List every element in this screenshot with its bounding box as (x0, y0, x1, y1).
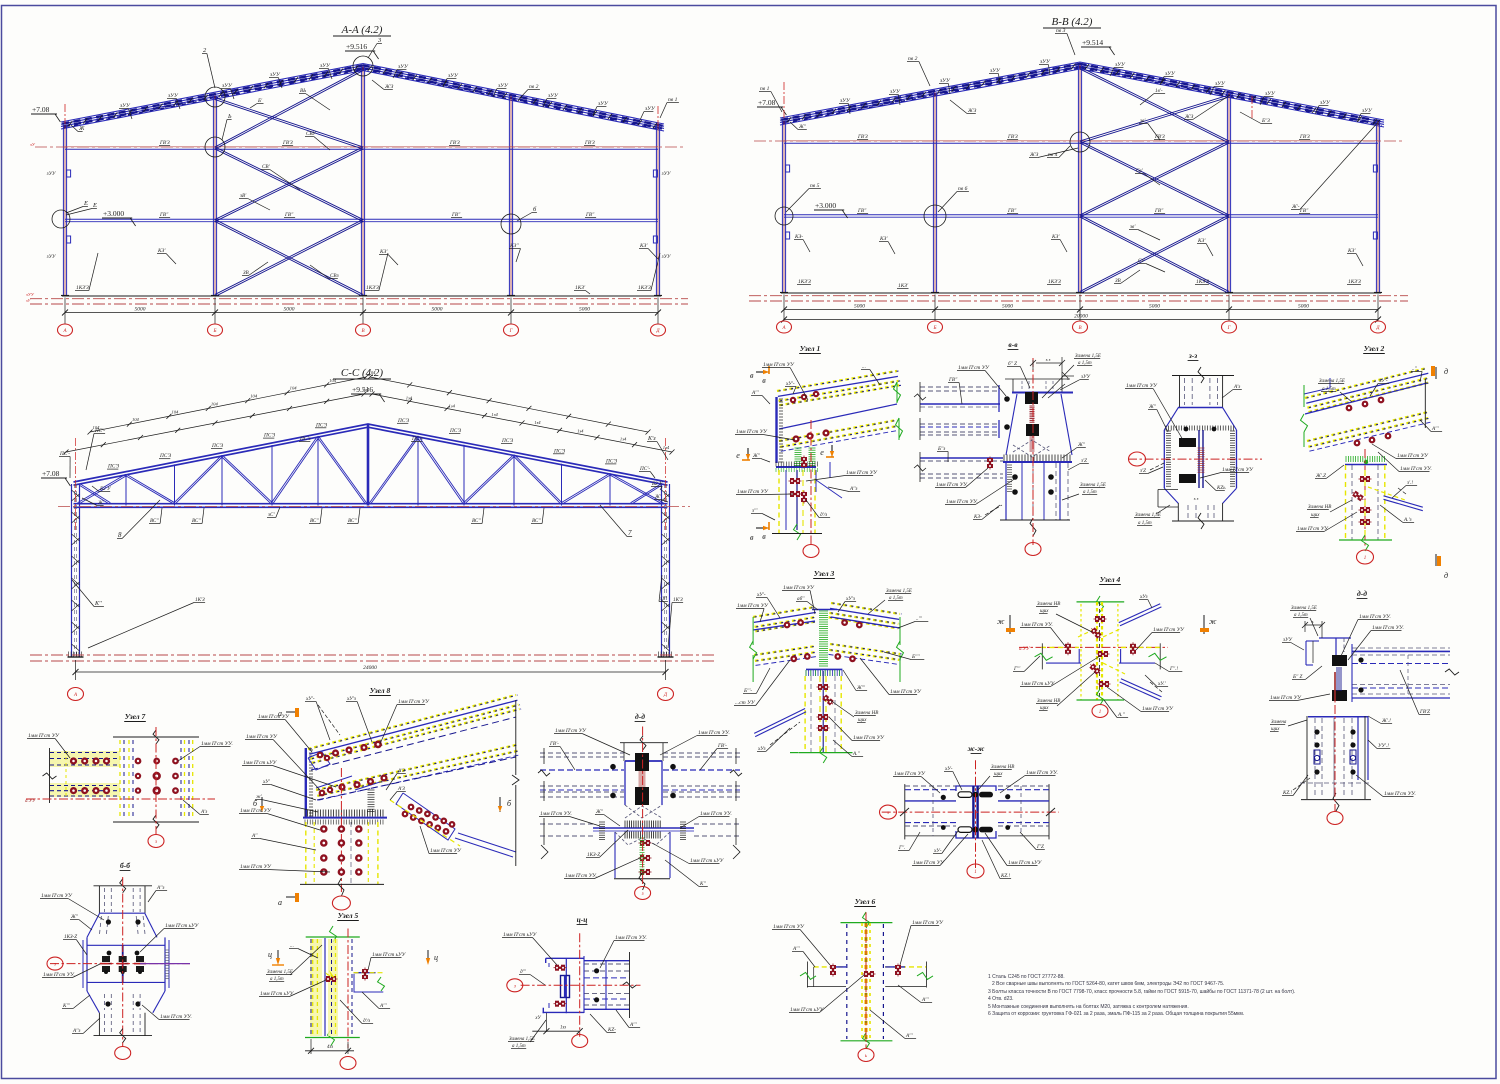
svg-text:ПС'З: ПС'З (449, 428, 461, 434)
svg-text:СВз: СВз (330, 273, 339, 279)
svg-text:+3.000: +3.000 (103, 209, 124, 218)
svg-text:А''з: А''з (849, 486, 857, 492)
svg-text:5000: 5000 (854, 304, 865, 310)
svg-text:е: е (736, 451, 740, 460)
svg-text:1мм П'ст УУ: 1мм П'ст УУ (28, 733, 60, 739)
svg-text:КЗ-: КЗ- (973, 514, 982, 520)
svg-text:ВС'': ВС'' (192, 518, 201, 524)
svg-text:хУ.': хУ.' (1157, 681, 1167, 687)
svg-text:ГВ'З: ГВ'З (1154, 134, 1165, 140)
svg-text:Г''': Г''' (1013, 666, 1021, 672)
svg-text:ПС'з: ПС'з (299, 436, 311, 442)
svg-text:д'/з: д'/з (820, 511, 827, 518)
svg-text:+3.000: +3.000 (815, 201, 836, 210)
svg-text:з: з (154, 840, 157, 845)
svg-text:1мм П'ст УУ: 1мм П'ст УУ (246, 734, 278, 740)
svg-text:зУУ: зУУ (1114, 62, 1126, 68)
svg-text:КZь: КZь (1216, 485, 1226, 491)
svg-text:ГВ'': ГВ'' (1154, 208, 1164, 214)
svg-text:1мм П'ст УУ: 1мм П'ст УУ (737, 489, 769, 495)
svg-text:А''': А''' (921, 997, 929, 1003)
svg-text:1мм П'ст УУ: 1мм П'ст УУ (258, 714, 290, 720)
svg-text:1мм П'ст ьУУ: 1мм П'ст ьУУ (372, 952, 407, 958)
svg-text:ж': ж' (256, 794, 263, 800)
svg-text:зв': зв' (1129, 224, 1136, 230)
svg-text:ГВ'Z: ГВ'Z (1419, 709, 1430, 715)
svg-text:д: д (1444, 571, 1448, 580)
svg-text:зУУ: зУУ (597, 101, 609, 107)
svg-text:Ж'': Ж'' (70, 914, 79, 920)
svg-text:ГВ'': ГВ'' (948, 377, 958, 383)
svg-text:1мм П'ст УУ.: 1мм П'ст УУ. (1026, 770, 1058, 776)
svg-text:1мм П'ст ьУУ: 1мм П'ст ьУУ (260, 991, 295, 997)
svg-text:1мм П'ст УУ: 1мм П'ст УУ (1153, 627, 1185, 633)
svg-text:Г''.!: Г''.! (1169, 666, 1178, 672)
svg-text:1в'-: 1в'- (1155, 88, 1163, 94)
svg-text:Б2 У: Б2 У (99, 486, 112, 492)
svg-text:зУУ: зУУ (939, 78, 951, 84)
svg-text:+7.08: +7.08 (32, 105, 50, 114)
svg-text:1мм П'ст УУ: 1мм П'ст УУ (555, 728, 587, 734)
svg-text:ВС'': ВС'' (150, 518, 159, 524)
svg-text:Б: Б (213, 329, 217, 334)
svg-text:B-B (4.2): B-B (4.2) (1052, 16, 1093, 28)
svg-text:А''': А''' (792, 946, 800, 952)
svg-text:д''': д''' (520, 968, 527, 975)
svg-text:ГВ'': ГВ'' (159, 212, 169, 218)
svg-text:ВС'': ВС'' (532, 518, 541, 524)
svg-text:Ж'': Ж'' (752, 453, 761, 459)
svg-text:Г: Г (509, 329, 513, 334)
svg-text:А''': А''' (905, 1033, 913, 1039)
svg-text:КЗ': КЗ' (379, 249, 388, 255)
svg-text:з: з (513, 984, 516, 989)
svg-text:Узел 8: Узел 8 (370, 686, 391, 695)
svg-text:1мм П'ст УУ.: 1мм П'ст УУ. (946, 499, 978, 505)
svg-text:зУУ: зУУ (839, 98, 851, 104)
svg-text:ж-ж: ж-ж (968, 744, 985, 753)
svg-text:пв 1: пв 1 (668, 97, 678, 103)
svg-text:Ж'З: Ж'З (1029, 152, 1039, 158)
svg-text:1мм П'ст УУ: 1мм П'ст УУ (737, 603, 769, 609)
svg-text:ПС'З: ПС'З (501, 438, 513, 444)
svg-text:А'з: А'з (1233, 384, 1240, 390)
svg-text:А''': А''' (629, 1022, 637, 1028)
svg-text:104: 104 (290, 386, 298, 391)
svg-text:ГВ'': ГВ'' (284, 212, 294, 218)
svg-text:в: в (750, 533, 754, 542)
svg-text:5000: 5000 (1002, 304, 1013, 310)
svg-text:1мм П'ст УУ.: 1мм П'ст УУ. (1400, 466, 1432, 472)
svg-text:А.'': А.'' (1117, 712, 1126, 718)
svg-text:пв 2: пв 2 (908, 56, 918, 62)
svg-text:1мм П'ст УУ.: 1мм П'ст УУ. (936, 482, 968, 488)
svg-text:КЗ': КЗ' (1347, 248, 1356, 254)
svg-text:Сз': Сз' (1138, 258, 1145, 264)
svg-text:ГВ'': ГВ'' (857, 208, 867, 214)
svg-text:ПС'З: ПС'З (107, 464, 119, 470)
svg-text:4 Отв. d23.: 4 Отв. d23. (988, 996, 1014, 1002)
svg-text:ГВ'З: ГВ'З (584, 140, 595, 146)
svg-text:ПС'-: ПС'- (94, 428, 105, 434)
svg-text:А'': А'' (251, 833, 258, 839)
svg-text:хУ'-: хУ'- (305, 696, 315, 702)
svg-text:КЗ': КЗ' (1051, 234, 1060, 240)
svg-text:5000: 5000 (432, 307, 443, 313)
svg-text:ПС'З: ПС'З (553, 448, 565, 454)
svg-text:д-д: д-д (635, 712, 645, 721)
svg-text:А'З: А'З (397, 768, 405, 774)
svg-text:СВ': СВ' (262, 164, 271, 170)
svg-text:+9.514: +9.514 (1082, 38, 1103, 47)
svg-text:104: 104 (171, 409, 179, 414)
svg-text:ц: ц (268, 950, 272, 959)
svg-text:1К'З: 1К'З (195, 597, 205, 603)
svg-text:1КЗ'З: 1КЗ'З (1196, 279, 1209, 285)
svg-text:А''': А''' (379, 1003, 387, 1009)
svg-text:1мм П'ст УУ.: 1мм П'ст УУ. (1384, 791, 1416, 797)
svg-text:Г''.: Г''. (898, 845, 905, 851)
svg-text:ГВ'': ГВ'' (585, 212, 595, 218)
svg-text:1мм П'ст ьУУ: 1мм П'ст ьУУ (243, 760, 278, 766)
svg-text:Г'Z: Г'Z (1036, 844, 1044, 850)
svg-text:1з4: 1з4 (534, 420, 541, 425)
svg-text:зУУ: зУУ (661, 172, 671, 177)
svg-text:A-A (4.2): A-A (4.2) (341, 24, 383, 36)
svg-text:ГВ'': ГВ'' (451, 212, 461, 218)
svg-text:зУУ: зУУ (447, 73, 459, 79)
svg-text:1мм П'ст УУ.: 1мм П'ст УУ. (160, 1014, 192, 1020)
svg-text:1з4: 1з4 (663, 445, 670, 450)
svg-text:1мм П'ст УУ: 1мм П'ст УУ (1142, 706, 1174, 712)
svg-text:Б''з: Б''з (937, 446, 945, 452)
svg-text:зУУ: зУУ (167, 93, 179, 99)
svg-text:в-в: в-в (1008, 340, 1018, 349)
svg-text:5000: 5000 (284, 307, 295, 313)
svg-text:..''': ..''' (916, 616, 923, 622)
svg-text:1мм П'ст УУ.: 1мм П'ст УУ. (1021, 622, 1053, 628)
svg-text:КЗ': КЗ' (879, 236, 888, 242)
svg-text:20000: 20000 (1074, 314, 1088, 320)
svg-text:104: 104 (369, 370, 377, 375)
svg-text:д-д: д-д (1357, 589, 1367, 598)
svg-text:104: 104 (211, 401, 219, 406)
svg-text:Узел 1: Узел 1 (800, 344, 821, 353)
svg-text:1мм П'ст УУ.: 1мм П'ст УУ. (700, 811, 732, 817)
svg-text:А.'з: А.'з (1403, 517, 1412, 523)
svg-text:Узел 2: Узел 2 (1364, 344, 1385, 353)
svg-text:1мм П'ст УУ: 1мм П'ст УУ (958, 365, 990, 371)
svg-text:1мм П'ст УУ: 1мм П'ст УУ (41, 893, 73, 899)
svg-text:ПС'-: ПС'- (59, 451, 70, 457)
svg-text:1мм П'ст УУ: 1мм П'ст УУ (894, 771, 926, 777)
svg-text:1КЗ'З: 1КЗ'З (1348, 279, 1361, 285)
svg-text:Ж'': Ж'' (798, 124, 807, 130)
svg-text:зУУ: зУУ (1282, 637, 1292, 643)
svg-text:В: В (361, 329, 364, 334)
svg-text:1з4: 1з4 (449, 404, 456, 409)
svg-text:1мм П'ст УУ: 1мм П'ст УУ (763, 362, 795, 368)
svg-text:зУУ: зУУ (1164, 71, 1176, 77)
svg-text:ГВ'З: ГВ'З (1299, 134, 1310, 140)
svg-text:ГВ'': ГВ'' (1007, 208, 1017, 214)
svg-text:1КЗ'З: 1КЗ'З (638, 285, 651, 291)
svg-text:1мм П'ст УУ: 1мм П'ст УУ (890, 689, 922, 695)
svg-text:зв': зв' (1139, 118, 1146, 124)
svg-text:Б'''': Б'''' (911, 654, 920, 660)
svg-text:СВУ: СВУ (306, 131, 316, 137)
svg-text:К'з: К'з (647, 436, 656, 442)
svg-text:з'.!: з'.! (1406, 480, 1413, 486)
svg-text:хУ'-: хУ'- (785, 381, 795, 387)
svg-text:хУ'-: хУ'- (756, 592, 766, 598)
svg-text:К''': К''' (62, 1003, 71, 1009)
svg-text:1мм П'ст УУ: 1мм П'ст УУ (1397, 453, 1429, 459)
svg-text:А'З: А'З (397, 786, 405, 792)
svg-text:1КЗ': 1КЗ' (898, 283, 909, 289)
svg-text:Ь: Ь (227, 114, 232, 120)
svg-text:КZ-: КZ- (607, 1027, 616, 1033)
svg-text:ВС'': ВС'' (310, 518, 319, 524)
svg-text:КZ.!: КZ.! (1282, 790, 1293, 796)
svg-text:1КЗ'З: 1КЗ'З (366, 285, 379, 291)
svg-text:зУУ: зУУ (25, 292, 35, 297)
svg-text:104: 104 (250, 394, 258, 399)
svg-text:Б: Б (933, 326, 937, 331)
svg-text:пв 6: пв 6 (958, 186, 968, 192)
svg-text:1мм П'ст УУ.: 1мм П'ст УУ. (43, 972, 75, 978)
svg-text:5000: 5000 (579, 307, 590, 313)
svg-text:1мм П'ст УУ.: 1мм П'ст УУ. (1372, 625, 1404, 631)
svg-text:1мм П'ст УУ: 1мм П'ст УУ (853, 735, 885, 741)
svg-text:Ж': Ж' (97, 500, 105, 506)
svg-text:1мм П'ст УУ: 1мм П'ст УУ (846, 470, 878, 476)
svg-text:8: 8 (118, 531, 122, 539)
svg-text:зУУ: зУУ (989, 68, 1001, 74)
svg-text:Б': Б' (257, 98, 263, 104)
svg-text:ц: ц (434, 953, 438, 962)
svg-text:зУУ: зУУ (1361, 108, 1373, 114)
svg-text:+9.516: +9.516 (346, 42, 367, 51)
svg-text:1з4: 1з4 (577, 428, 584, 433)
svg-text:КЗ': КЗ' (157, 248, 166, 254)
svg-text:КЗ'': КЗ'' (509, 243, 519, 249)
svg-text:А''з: А''з (156, 885, 164, 891)
svg-text:ГВ'З: ГВ'З (1007, 134, 1018, 140)
svg-text:1КЗ-Z: 1КЗ-Z (587, 852, 600, 858)
svg-text:1мм П'ст ьУУ: 1мм П'ст ьУУ (1008, 860, 1043, 866)
svg-text:Е: Е (83, 200, 88, 207)
svg-text:1: 1 (1364, 556, 1367, 561)
svg-text:Узел 6: Узел 6 (855, 897, 876, 906)
svg-text:КЗ': КЗ' (1197, 238, 1206, 244)
svg-text:1з4: 1з4 (620, 437, 627, 442)
svg-text:1: 1 (974, 870, 977, 875)
svg-text:хУ-: хУ- (933, 848, 942, 854)
svg-text:1мм П'ст УУ.: 1мм П'ст УУ. (201, 741, 233, 747)
svg-text:з.з: з.з (1193, 496, 1199, 501)
svg-text:Ж'': Ж'' (1077, 442, 1086, 448)
svg-text:6 Защита от коррозии: грунтовк: 6 Защита от коррозии: грунтовка ГФ-021 з… (988, 1011, 1244, 1017)
svg-text:пв 2: пв 2 (529, 84, 539, 90)
svg-text:ПС'З: ПС'З (315, 422, 327, 428)
svg-text:зУ: зУ (29, 142, 36, 147)
svg-text:1мм П'ст УУ: 1мм П'ст УУ (240, 808, 272, 814)
svg-text:зУУ: зУУ (46, 172, 56, 177)
svg-text:2 Все сварные швы выполнять по: 2 Все сварные швы выполнять по ГОСТ 5264… (992, 981, 1224, 987)
svg-text:ПС'з: ПС'з (411, 436, 423, 442)
svg-text:ГВ'-: ГВ'- (717, 743, 727, 749)
svg-text:з-з: з-з (1188, 351, 1197, 360)
svg-text:КZ.!: КZ.! (1000, 873, 1011, 879)
svg-text:зУУ: зУУ (1080, 374, 1090, 380)
svg-text:зУУ: зУУ (661, 255, 671, 260)
svg-text:з.з: з.з (1045, 357, 1051, 362)
svg-text:1мм П'ст УУ.: 1мм П'ст УУ. (540, 811, 572, 817)
svg-text:а: а (278, 898, 282, 907)
svg-text:в: в (762, 376, 766, 385)
svg-text:Ж''': Ж''' (856, 685, 866, 691)
svg-text:1мм П'ст УУ: 1мм П'ст УУ (736, 429, 768, 435)
svg-text:Б2 У: Б2 У (651, 481, 664, 487)
svg-text:1КЗ'З: 1КЗ'З (1048, 279, 1061, 285)
svg-text:з: з (53, 963, 56, 968)
svg-text:аб'': аб'' (797, 595, 805, 602)
svg-text:зУУ: зУУ (119, 103, 131, 109)
svg-text:1мм П'ст УУ.: 1мм П'ст УУ. (1359, 614, 1391, 620)
svg-text:Ж: Ж (78, 126, 85, 132)
svg-text:Ж'': Ж'' (595, 809, 604, 815)
svg-text:7: 7 (628, 529, 632, 537)
svg-text:зУУ: зУУ (497, 83, 509, 89)
svg-text:зУУ: зУУ (1264, 91, 1276, 97)
svg-text:1КЗ'З: 1КЗ'З (76, 285, 89, 291)
svg-text:24000: 24000 (363, 664, 377, 671)
svg-text:1: 1 (1099, 710, 1102, 715)
svg-text:а.УУ: а.УУ (25, 799, 36, 804)
svg-text:1КЗ': 1КЗ' (575, 285, 586, 291)
svg-text:1мм П'ст УУ: 1мм П'ст УУ (1222, 467, 1254, 473)
svg-text:Узел 4: Узел 4 (1100, 575, 1121, 584)
svg-text:1КЗ-Z: 1КЗ-Z (64, 934, 77, 940)
svg-text:К'': К'' (699, 881, 707, 887)
svg-text:ПС'З: ПС'З (263, 433, 275, 439)
svg-text:Ж'': Ж'' (1148, 404, 1157, 410)
svg-text:КЗ-: КЗ- (794, 234, 803, 240)
svg-text:3 Болты класса точности В по Г: 3 Болты класса точности В по ГОСТ 7798-7… (988, 988, 1295, 995)
svg-text:пв 5: пв 5 (810, 183, 820, 189)
svg-text:зУ': зУ' (659, 596, 667, 602)
svg-text:А'з: А'з (200, 809, 207, 815)
svg-text:хУ: хУ (534, 1016, 541, 1021)
svg-text:ж: ж (997, 617, 1005, 626)
svg-text:...: ... (862, 364, 866, 370)
svg-text:ГВ'-: ГВ'- (549, 741, 559, 747)
svg-text:д: д (1444, 367, 1448, 376)
svg-text:д'/з: д'/з (363, 1017, 370, 1024)
svg-text:Г: Г (1227, 326, 1231, 331)
svg-text:пв 1: пв 1 (760, 86, 770, 92)
svg-text:з'Z: з'Z (1139, 468, 1146, 474)
svg-text:1мм П'ст УУ: 1мм П'ст УУ (783, 585, 815, 591)
svg-text:1зз: 1зз (560, 1026, 566, 1031)
svg-text:зУУ: зУУ (889, 89, 901, 95)
svg-text:1мм П'ст ьУУ: 1мм П'ст ьУУ (690, 858, 725, 864)
svg-text:ПС'-: ПС'- (639, 466, 650, 472)
svg-text:А''з: А''з (72, 1028, 80, 1034)
svg-text:...: ... (290, 943, 294, 949)
svg-text:ПС'З: ПС'З (605, 458, 617, 464)
svg-text:1з4: 1з4 (363, 387, 370, 392)
svg-text:хУ'з: хУ'з (845, 596, 855, 602)
svg-text:+7.08: +7.08 (42, 469, 60, 478)
svg-text:Ж'З: Ж'З (384, 84, 394, 90)
svg-text:зУУ: зУУ (1319, 100, 1331, 106)
svg-text:е: е (820, 448, 824, 457)
svg-text:5 Монтажные соединения выполня: 5 Монтажные соединения выполнять на болт… (988, 1004, 1189, 1010)
svg-text:Узел 5: Узел 5 (338, 911, 359, 920)
svg-text:ГВ'З: ГВ'З (159, 140, 170, 146)
svg-text:Ж'З: Ж'З (967, 108, 977, 114)
svg-text:зС': зС' (267, 512, 275, 518)
svg-text:1мм П'ст УУ: 1мм П'ст УУ (240, 864, 272, 870)
svg-text:104: 104 (329, 378, 337, 383)
svg-text:зУУ: зУУ (319, 63, 331, 69)
svg-text:хУз: хУз (757, 746, 766, 752)
svg-text:зУУ: зУУ (1214, 81, 1226, 87)
svg-text:Ж'.Z: Ж'.Z (1315, 473, 1326, 479)
svg-text:...ст УУ: ...ст УУ (735, 700, 756, 706)
svg-text:а.УУ: а.УУ (1019, 647, 1030, 652)
svg-text:зУУ: зУУ (397, 64, 409, 70)
svg-text:пв 3: пв 3 (1056, 28, 1066, 34)
svg-text:Ж'З: Ж'З (1184, 114, 1194, 120)
svg-text:104: 104 (132, 417, 140, 422)
svg-text:в: в (762, 532, 766, 541)
svg-text:Е: Е (92, 202, 97, 209)
svg-text:зВ': зВ' (239, 193, 247, 199)
svg-text:1мм П'ст ьУУ: 1мм П'ст ьУУ (503, 932, 538, 938)
svg-text:Б''З: Б''З (1261, 118, 1270, 124)
svg-text:з''': з''' (751, 508, 758, 514)
svg-text:зУУ: зУУ (46, 255, 56, 260)
svg-text:Ж'.!: Ж'.! (1381, 718, 1391, 724)
svg-text:Б'' Z: Б'' Z (1292, 674, 1303, 680)
svg-text:ГВ'З: ГВ'З (857, 134, 868, 140)
svg-text:1 Сталь С245 по ГОСТ 27772-88.: 1 Сталь С245 по ГОСТ 27772-88. (988, 974, 1065, 980)
svg-text:Св': Св' (1136, 168, 1144, 174)
svg-text:з: з (886, 811, 889, 816)
svg-text:1мм П'ст УУ.: 1мм П'ст УУ. (565, 873, 597, 879)
svg-text:ВЬ: ВЬ (300, 88, 306, 94)
svg-text:ПС'З: ПС'З (211, 443, 223, 449)
svg-text:1мм П'ст УУ: 1мм П'ст УУ (430, 848, 462, 854)
svg-text:4зз: 4зз (327, 1045, 333, 1050)
svg-text:1мм П'ст УУ.: 1мм П'ст УУ. (698, 730, 730, 736)
svg-text:Ж': Ж' (654, 494, 662, 500)
svg-text:1з4: 1з4 (406, 395, 413, 400)
svg-text:А.'': А.'' (852, 751, 861, 757)
svg-text:1мм П'ст УУ: 1мм П'ст УУ (1126, 383, 1158, 389)
svg-text:з'Z: з'Z (1080, 458, 1087, 464)
svg-text:Узел 7: Узел 7 (125, 712, 146, 721)
svg-text:хУ': хУ' (262, 779, 271, 785)
svg-text:хУ-: хУ- (944, 766, 953, 772)
svg-text:з: з (641, 892, 644, 897)
svg-text:Б'''-: Б'''- (743, 688, 752, 694)
svg-text:А''': А''' (1431, 426, 1439, 432)
svg-text:Узел 3: Узел 3 (814, 569, 835, 578)
